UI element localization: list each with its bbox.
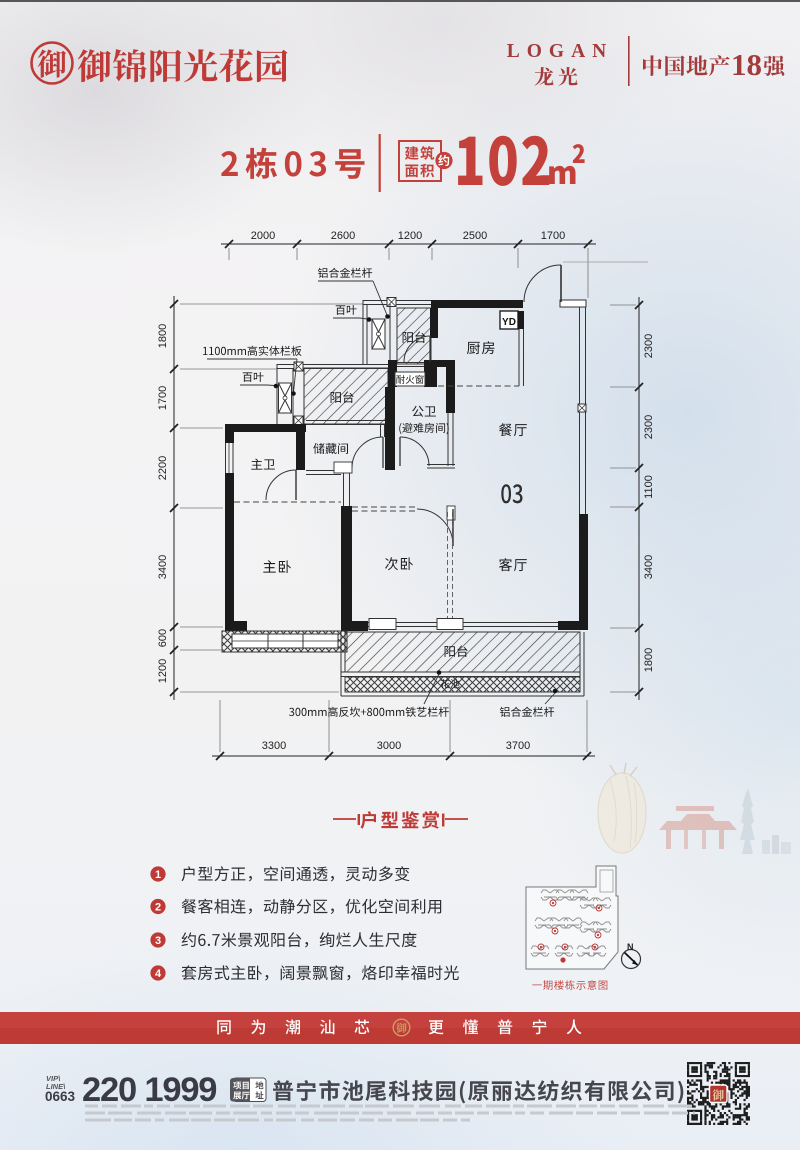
svg-text:220 1999: 220 1999 [82,1071,216,1109]
svg-text:3: 3 [155,935,161,947]
svg-text:N: N [627,942,634,952]
svg-text:1: 1 [155,869,161,881]
svg-text:2: 2 [155,902,161,914]
svg-text:0663: 0663 [45,1089,76,1104]
svg-text:4: 4 [155,968,162,980]
